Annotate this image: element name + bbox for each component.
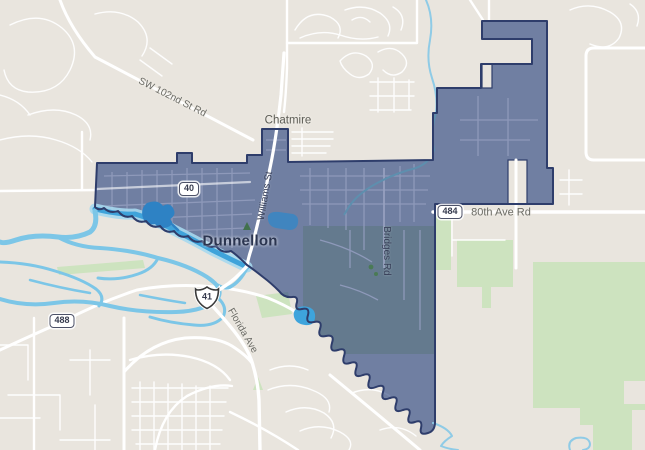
tree-icon xyxy=(369,265,374,270)
park-under-boundary xyxy=(303,226,435,354)
tree-icon xyxy=(374,272,378,276)
basemap-svg xyxy=(0,0,645,450)
map-canvas[interactable]: SW 102nd St Rd Chatmire Williams St Dunn… xyxy=(0,0,645,450)
